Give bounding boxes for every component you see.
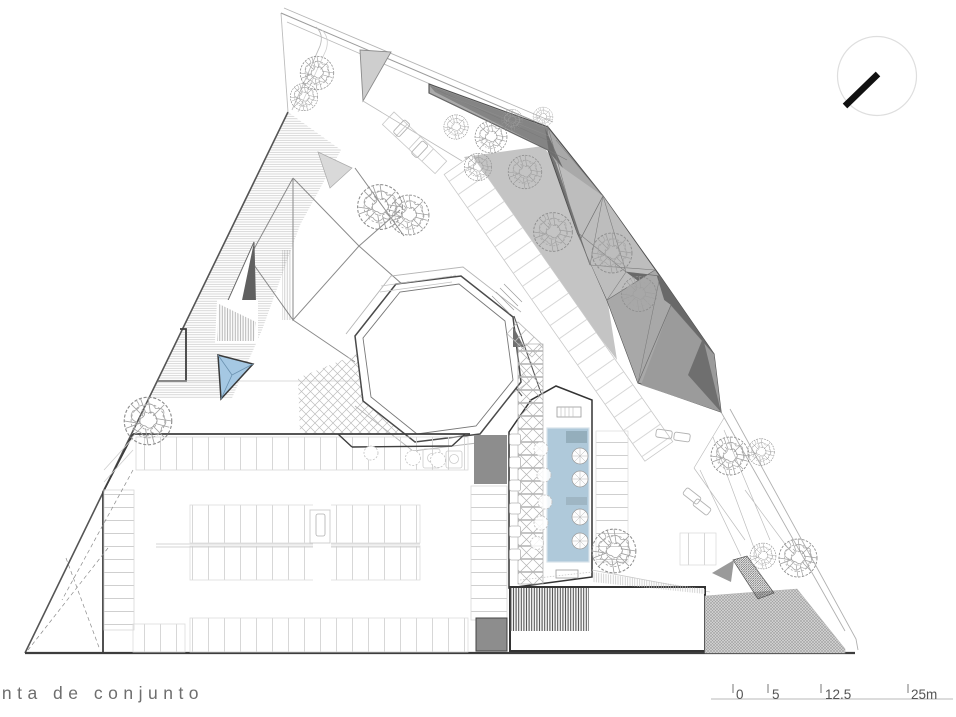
svg-text:0: 0: [736, 687, 744, 702]
svg-text:25m: 25m: [911, 687, 937, 702]
svg-text:planta de conjunto: planta de conjunto: [0, 683, 204, 703]
svg-text:5: 5: [772, 687, 780, 702]
svg-text:12.5: 12.5: [825, 687, 851, 702]
